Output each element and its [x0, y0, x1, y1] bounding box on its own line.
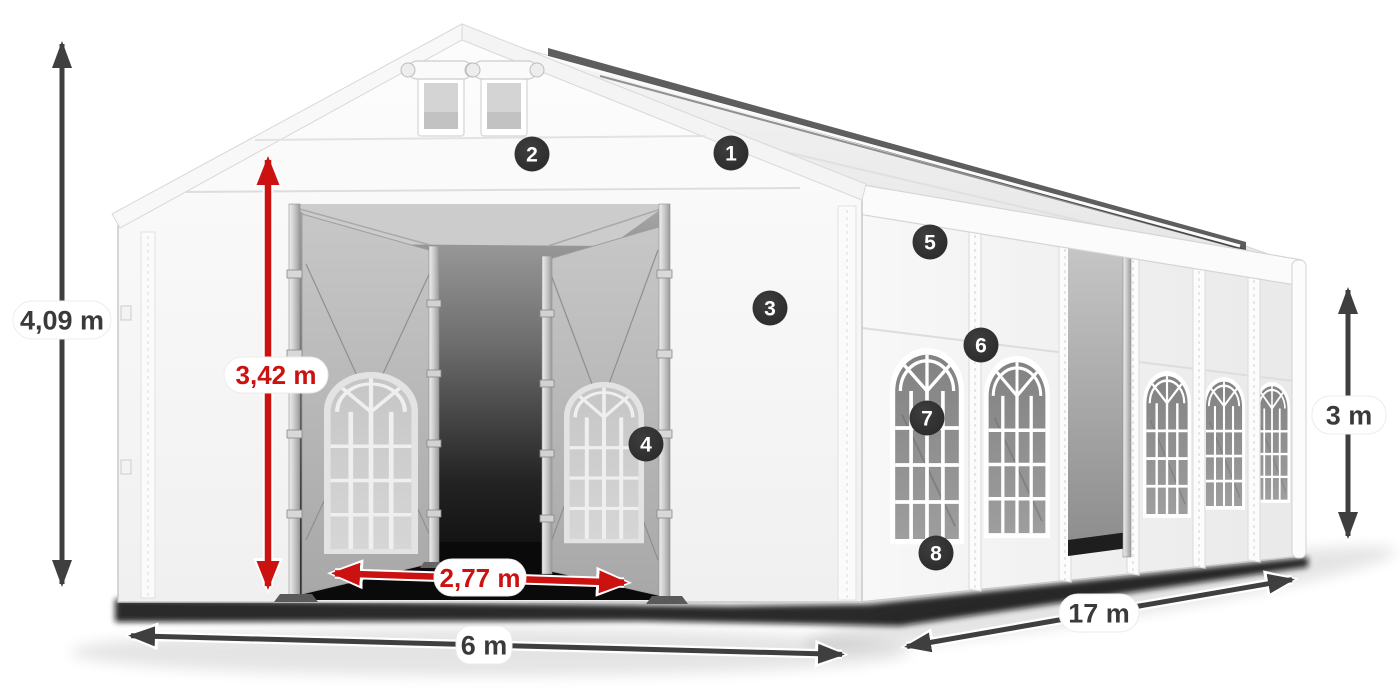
svg-text:1: 1 — [725, 143, 737, 166]
side-doorway-pole — [1123, 247, 1131, 557]
marker-8: 8 — [919, 536, 954, 571]
right-door-panel — [540, 226, 662, 596]
svg-text:3: 3 — [764, 298, 776, 321]
side-window — [890, 348, 964, 544]
side-window — [984, 356, 1050, 538]
svg-text:2,77 m: 2,77 m — [440, 563, 521, 593]
svg-text:6 m: 6 m — [461, 631, 508, 661]
vent-rolled-cover — [408, 61, 472, 79]
door-window-print — [324, 372, 418, 554]
dimension-label-side-height: 3 m — [1312, 396, 1386, 434]
svg-text:7: 7 — [921, 408, 933, 431]
vent-rolled-cover — [473, 61, 537, 79]
dimension-label-door-height: 3,42 m — [224, 357, 328, 393]
marker-2: 2 — [515, 137, 550, 172]
base-plate — [274, 594, 318, 602]
diagram-canvas: 1 2 3 4 5 6 7 8 — [0, 0, 1400, 700]
marker-7: 7 — [910, 401, 945, 436]
entrance-left-pole — [289, 204, 300, 598]
svg-text:5: 5 — [924, 232, 936, 255]
svg-text:8: 8 — [930, 543, 942, 566]
svg-text:2: 2 — [526, 144, 538, 167]
marker-3: 3 — [753, 291, 788, 326]
far-corner-post — [1292, 260, 1306, 558]
svg-text:3,42 m: 3,42 m — [236, 360, 317, 390]
right-door-pole — [542, 256, 552, 574]
door-window-print — [564, 382, 644, 543]
svg-text:4: 4 — [640, 434, 652, 457]
marker-1: 1 — [714, 136, 749, 171]
svg-text:6: 6 — [975, 335, 987, 358]
side-doorway-opening — [1068, 243, 1135, 557]
dimension-label-total-height: 4,09 m — [13, 301, 111, 339]
marker-4: 4 — [629, 427, 664, 462]
dimension-label-gable-width: 6 m — [456, 626, 512, 664]
side-window — [1203, 377, 1245, 510]
marker-6: 6 — [964, 328, 999, 363]
left-door-panel — [302, 214, 441, 594]
svg-text:17 m: 17 m — [1068, 599, 1130, 629]
tent-dimension-diagram: 1 2 3 4 5 6 7 8 — [0, 0, 1400, 700]
dimension-label-length: 17 m — [1059, 594, 1139, 632]
entrance-opening — [274, 204, 688, 604]
svg-text:3 m: 3 m — [1326, 401, 1373, 431]
marker-5: 5 — [913, 225, 948, 260]
entrance-right-pole — [659, 204, 670, 600]
side-window — [1143, 371, 1191, 518]
base-plate — [646, 596, 688, 604]
dimension-label-door-width: 2,77 m — [434, 559, 526, 596]
left-door-pole — [429, 246, 439, 566]
svg-text:4,09 m: 4,09 m — [20, 306, 104, 336]
